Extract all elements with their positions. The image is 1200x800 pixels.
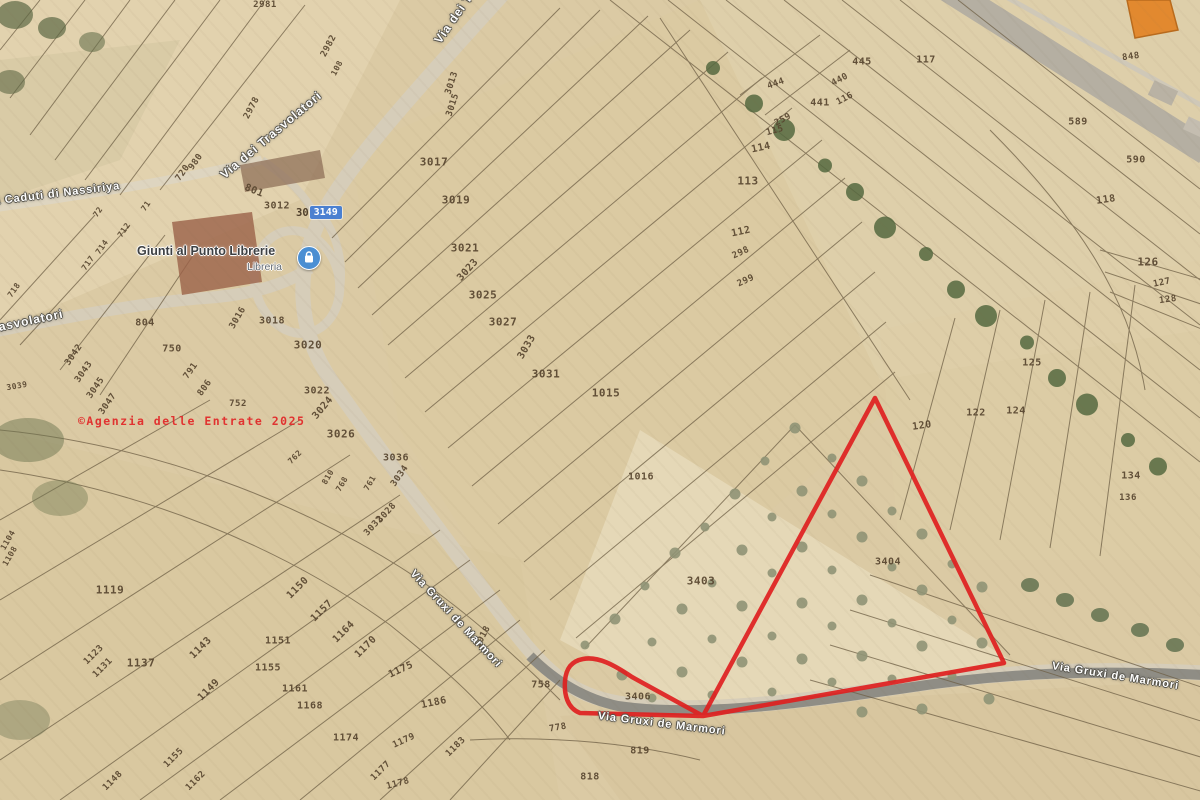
poi-label[interactable]: Giunti al Punto Librerie: [137, 244, 275, 258]
poi-category: Libreria: [247, 261, 282, 273]
road-label: Via dei Trasvolatori: [0, 307, 64, 347]
road-label-layer: Via dei TrasvolatoriVia dei Trasvolatori…: [0, 0, 1200, 800]
selected-parcel-prefix: 30: [296, 207, 309, 219]
road-label: Via dei Trasvolatori: [431, 0, 516, 46]
satellite-cadastral-map[interactable]: 2981298210829789807208013012301330153017…: [0, 0, 1200, 800]
road-label: Via dei Trasvolatori: [218, 88, 325, 181]
poi-marker[interactable]: [297, 246, 321, 270]
road-label: Via Gruxi de Marmori: [408, 568, 504, 670]
road-label: Via Gruxi de Marmori: [597, 710, 726, 738]
road-label: Via Gruxi de Marmori: [1051, 660, 1180, 692]
agency-watermark: ©Agenzia delle Entrate 2025: [78, 414, 305, 428]
road-label: Via Caduti di Nassiriya: [0, 180, 121, 209]
selected-parcel-number: 3149: [310, 206, 342, 219]
selected-parcel-chip[interactable]: 30 3149: [296, 206, 342, 219]
